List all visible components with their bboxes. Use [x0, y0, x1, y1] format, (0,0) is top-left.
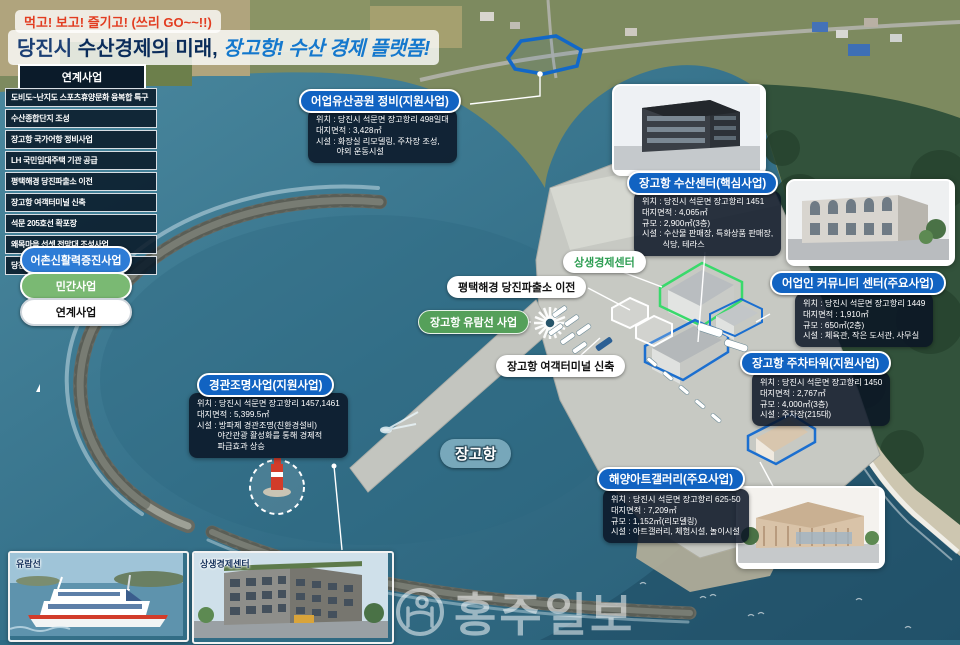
legend-private: 민간사업: [20, 272, 132, 300]
list-item: LH 국민임대주택 기관 공급: [5, 151, 157, 170]
community-center-render: [786, 179, 955, 266]
list-item: 장고항 국가어항 정비사업: [5, 130, 157, 149]
map-label-terminal: 장고항 여객터미널 신축: [496, 355, 625, 377]
callout-body-community-center: 위치 : 당진시 석문면 장고항리 1449 대지면적 : 1,910㎡ 규모 …: [795, 293, 933, 347]
list-item: 수산종합단지 조성: [5, 109, 157, 128]
map-label-port-name: 장고항: [440, 439, 511, 468]
fisheries-center-render: [612, 84, 766, 176]
map-label-sangsaeng-center: 상생경제센터: [563, 251, 646, 273]
callout-body-fisheries-center: 위치 : 당진시 석문면 장고항리 1451 대지면적 : 4,065㎡ 규모 …: [634, 191, 781, 256]
map-label-coastguard: 평택해경 당진파출소 이전: [447, 276, 586, 298]
callout-body-art-gallery: 위치 : 당진시 석문면 장고항리 625-50 대지면적 : 7,209㎡ 규…: [603, 489, 749, 543]
title-highlight: 장고항! 수산 경제 플랫폼!: [223, 38, 430, 60]
map-label-cruise: 장고항 유람선 사업: [418, 310, 529, 334]
sangsaeng-center-photo: 상생경제센터: [192, 551, 394, 644]
watermark-text: 홍주일보: [454, 579, 635, 645]
title-main: 수산경제의 미래,: [78, 38, 223, 60]
list-item: 평택해경 당진파출소 이전: [5, 172, 157, 191]
cruise-ship-photo: 유람선: [8, 551, 189, 642]
thumbnail-caption: 상생경제센터: [200, 557, 250, 570]
newspaper-watermark: 홍주일보: [394, 579, 635, 645]
newspaper-logo-icon: [394, 586, 446, 638]
art-gallery-render: [736, 486, 885, 569]
callout-title-community-center: 어업인 커뮤니티 센터(주요사업): [770, 271, 946, 295]
sidebar-header: 연계사업: [18, 64, 146, 90]
list-item: 장고항 여객터미널 신축: [5, 193, 157, 212]
page-title: 당진시 수산경제의 미래, 장고항! 수산 경제 플랫폼!: [8, 30, 439, 65]
legend-linked: 연계사업: [20, 298, 132, 326]
callout-title-heritage-park: 어업유산공원 정비(지원사업): [299, 89, 461, 113]
callout-title-parking-tower: 장고항 주차타워(지원사업): [740, 351, 891, 375]
thumbnail-caption: 유람선: [16, 557, 41, 570]
callout-body-parking-tower: 위치 : 당진시 석문면 장고항리 1450 대지면적 : 2,767㎡ 규모 …: [752, 372, 890, 426]
callout-body-heritage-park: 위치 : 당진시 석문면 장고항리 498일대 대지면적 : 3,428㎡ 시설…: [308, 109, 457, 163]
list-item: 도비도~난지도 스포츠휴양문화 융복합 특구: [5, 88, 157, 107]
legend-revitalization: 어촌신활력증진사업: [20, 246, 132, 274]
callout-title-fisheries-center: 장고항 수산센터(핵심사업): [627, 171, 778, 195]
list-item: 석문 205호선 확포장: [5, 214, 157, 233]
callout-body-lighting: 위치 : 당진시 석문면 장고항리 1457,1461 대지면적 : 5,399…: [189, 393, 348, 458]
title-city: 당진시: [17, 38, 78, 60]
callout-title-lighting: 경관조명사업(지원사업): [197, 373, 334, 397]
callout-title-art-gallery: 해양아트갤러리(주요사업): [597, 467, 745, 491]
